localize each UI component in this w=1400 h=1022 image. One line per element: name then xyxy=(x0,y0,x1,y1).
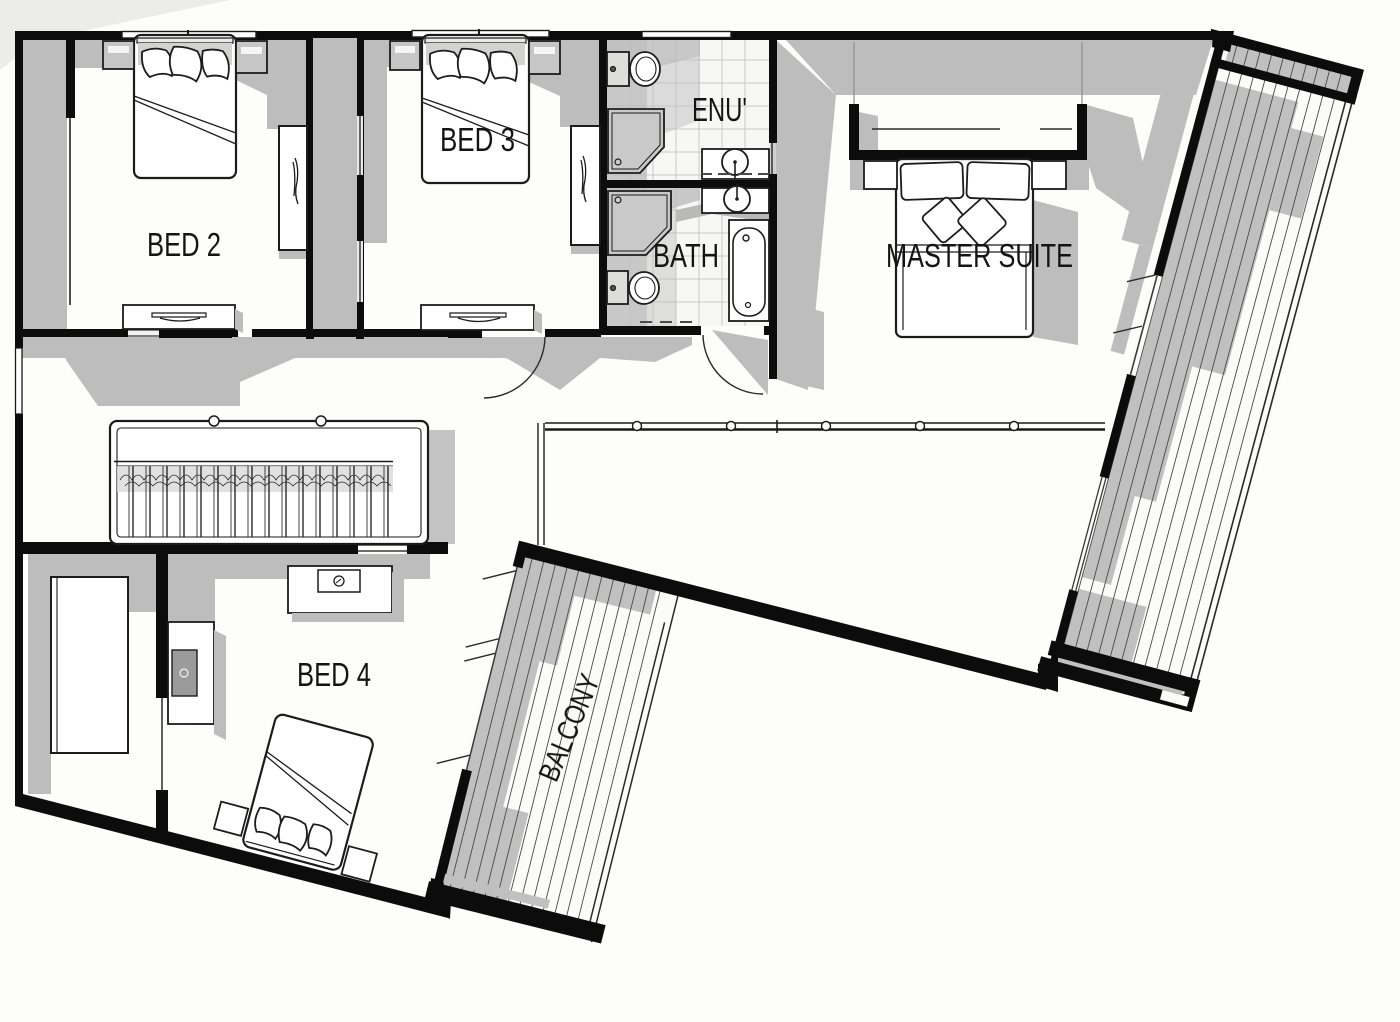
svg-text:BED 4: BED 4 xyxy=(297,656,371,693)
svg-text:BED 2: BED 2 xyxy=(147,226,221,263)
svg-text:BED 3: BED 3 xyxy=(440,121,515,158)
svg-text:MASTER SUITE: MASTER SUITE xyxy=(886,237,1073,274)
svg-text:ENU': ENU' xyxy=(692,91,747,128)
svg-text:BATH: BATH xyxy=(653,237,719,274)
